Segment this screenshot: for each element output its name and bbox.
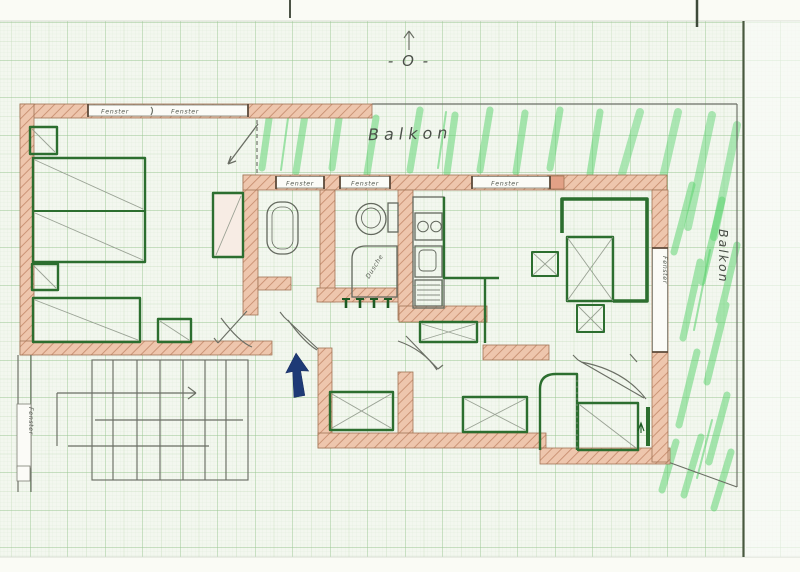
fenster-mid-2: Fenster: [351, 180, 379, 188]
floor-plan-scan: - O - Balkon Balkon Fenster Fenster Fens…: [0, 0, 800, 572]
wall-bottom-a: [318, 433, 546, 448]
fenster-top-left: Fenster: [101, 108, 129, 116]
wall-living-divider: [483, 345, 549, 360]
balcony-right-label: Balkon: [716, 229, 731, 284]
fenster-mid-3: Fenster: [491, 180, 519, 188]
wall-bath-left: [320, 190, 335, 302]
fenster-mid-1: Fenster: [286, 180, 314, 188]
bottom-margin: [0, 557, 800, 572]
fenster-top-right: Fenster: [171, 108, 199, 116]
wall-hall-door-pier: [398, 372, 413, 434]
wall-kitchen-left: [398, 190, 413, 320]
floor-plan-drawing: - O - Balkon Balkon Fenster Fenster Fens…: [0, 0, 800, 572]
wall-wc-bottom: [258, 277, 291, 290]
balcony-top-label: Balkon: [368, 123, 453, 144]
top-margin: [0, 0, 800, 21]
compass-label: - O -: [388, 52, 430, 70]
fenster-right-wall: Fenster: [661, 256, 669, 284]
wall-bedroom-right: [243, 175, 258, 315]
stairwell-window-sill: [17, 466, 30, 481]
fenster-stairwell: Fenster: [27, 407, 35, 435]
right-sheet-overlay: [744, 21, 800, 557]
